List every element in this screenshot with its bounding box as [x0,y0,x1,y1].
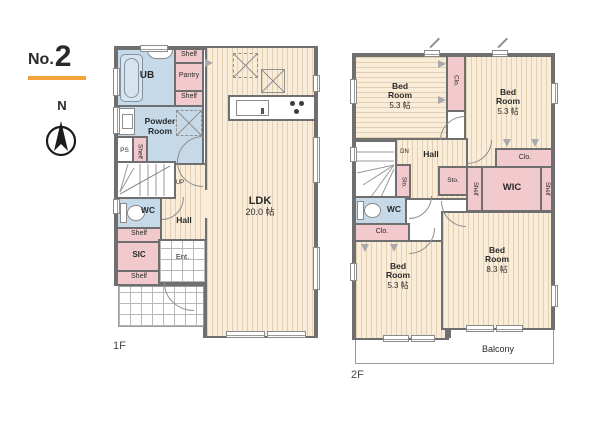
ceiling-box [261,69,285,93]
label-hall: Hall [418,150,444,160]
plan-number-underline [28,76,86,80]
window [313,137,320,183]
window [383,335,409,342]
label-shelf: Shelf [177,93,201,102]
toilet-icon [120,203,127,223]
label-shelf: Shelf [177,51,201,60]
ldk-name: LDK [237,195,283,207]
stairs-treads-1f [120,164,172,196]
plan-number-value: 2 [55,44,72,70]
label-shelf: Shelf [133,139,147,163]
plan-number: No. 2 [28,44,71,70]
label-ps: PS [117,146,132,155]
window-tick [429,38,439,48]
label-bedroom-bottom-left: Bed Room 5.3 帖 [376,258,420,294]
window [113,199,120,214]
label-sto: Sto. [444,176,462,185]
north-label: N [54,99,70,113]
closet-marker [361,244,369,252]
label-dn: DN [397,148,412,157]
closet-marker [438,96,446,104]
label-sto: Sto. [397,170,409,194]
bedroom-size: 8.3 帖 [486,265,507,275]
ceiling-hatch [233,53,258,78]
window [313,247,320,290]
window [411,335,435,342]
window [551,285,558,307]
label-wc: WC [139,206,157,216]
label-powder-room: Powder Room [134,117,186,137]
plan-number-prefix: No. [28,52,54,70]
floorplan-page: No. 2 N [0,0,600,431]
label-sic: SIC [130,250,148,260]
window [113,68,120,96]
window [350,147,357,162]
bedroom-name: Bed Room [381,262,415,281]
closet-marker [390,244,398,252]
bedroom-name: Bed Room [480,246,514,265]
window [113,107,120,134]
north-arrow-icon [44,118,80,160]
label-shelf: Shelf [468,174,481,204]
label-up: UP [172,179,188,188]
powder-sink-icon [118,108,135,135]
label-hall: Hall [172,216,196,226]
label-balcony: Balcony [466,343,530,355]
floor1-label: 1F [113,340,135,352]
bedroom-size: 5.3 帖 [387,281,408,291]
label-wic: WIC [497,182,527,194]
door-marker [205,59,213,67]
label-clo: Clo. [366,227,398,237]
window [313,75,320,92]
label-ent: Ent. [169,252,196,262]
label-clo: Clo. [511,153,539,163]
window [496,325,523,332]
label-shelf: Shelf [124,273,154,282]
bedroom-size: 5.3 帖 [497,107,518,117]
ldk-size: 20.0 帖 [245,207,274,218]
bedroom-name: Bed Room [491,88,525,107]
floor2-label: 2F [351,369,373,381]
window [551,83,558,104]
closet-marker [503,139,511,147]
label-ldk: LDK 20.0 帖 [237,192,283,220]
bedroom-size: 5.3 帖 [389,101,410,111]
label-clo: Clo. [449,66,463,96]
window [226,331,265,338]
stairs-treads-2f [357,143,394,197]
door-arc [409,196,432,219]
window [267,331,306,338]
window-tick [497,38,507,48]
label-wc: WC [385,205,403,215]
toilet-icon [364,203,381,218]
label-shelf: Shelf [540,174,553,204]
window [492,50,508,57]
window [350,263,357,281]
bedroom-name: Bed Room [383,82,417,101]
label-bedroom-top-right: Bed Room 5.3 帖 [486,84,530,120]
closet-marker [438,60,446,68]
window [466,325,494,332]
label-bedroom-bottom-right: Bed Room 8.3 帖 [475,242,519,278]
window [350,79,357,104]
closet-marker [531,139,539,147]
label-ub: UB [136,70,158,82]
label-shelf: Shelf [124,230,154,239]
label-pantry: Pantry [176,72,202,81]
toilet-icon [357,201,364,220]
window [140,45,168,52]
wall-opening [203,190,209,218]
window [424,50,440,57]
stove-icon [288,99,314,117]
label-bedroom-top-left: Bed Room 5.3 帖 [378,78,422,114]
kitchen-sink-icon [236,100,269,116]
